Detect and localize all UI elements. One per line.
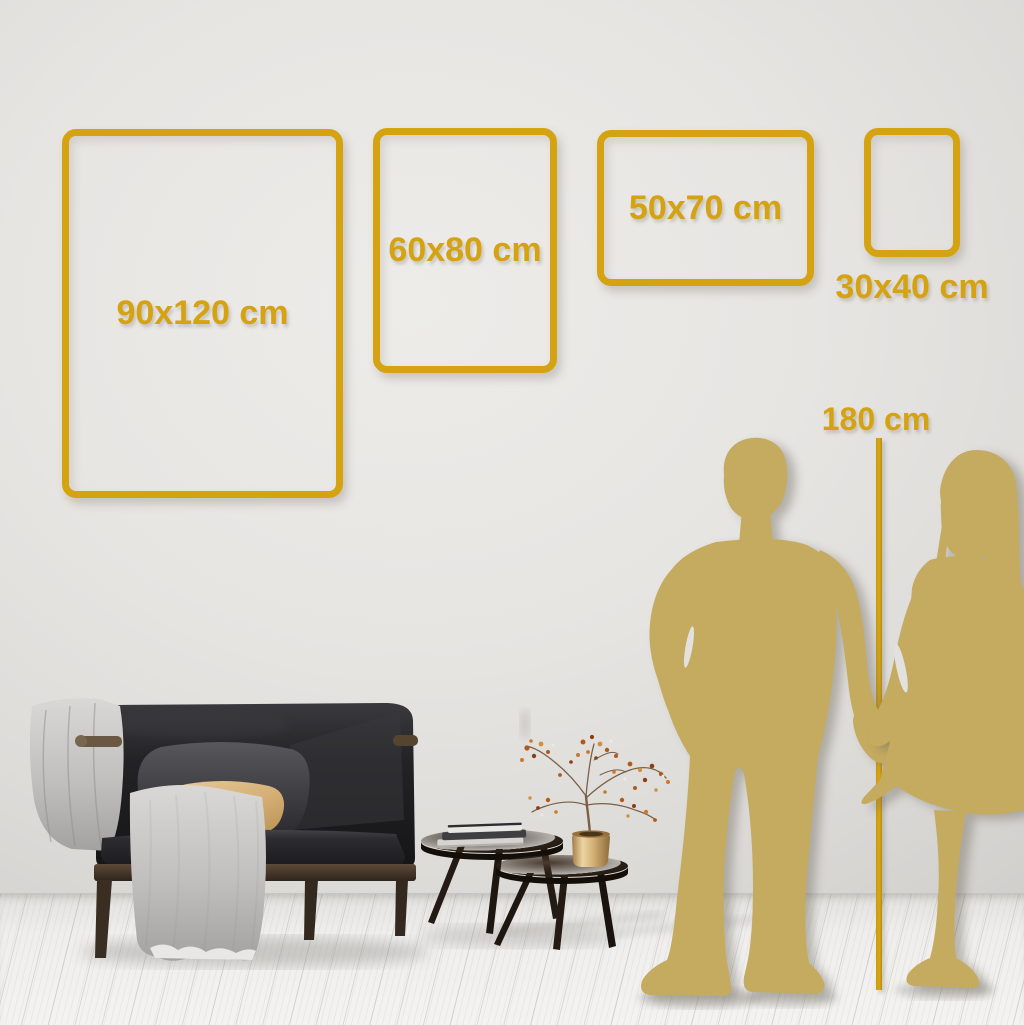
branch-berries — [520, 735, 670, 822]
woman-silhouette — [861, 450, 1024, 988]
sofa-illustration — [30, 698, 418, 960]
man-silhouette — [641, 438, 894, 996]
wall-smudge — [520, 709, 530, 739]
brass-vase — [572, 830, 610, 867]
room-illustration — [0, 0, 1024, 1024]
poster-size-guide: 90x120 cm 60x80 cm 50x70 cm 30x40 cm 180… — [0, 0, 1024, 1024]
book-stack — [437, 822, 527, 847]
